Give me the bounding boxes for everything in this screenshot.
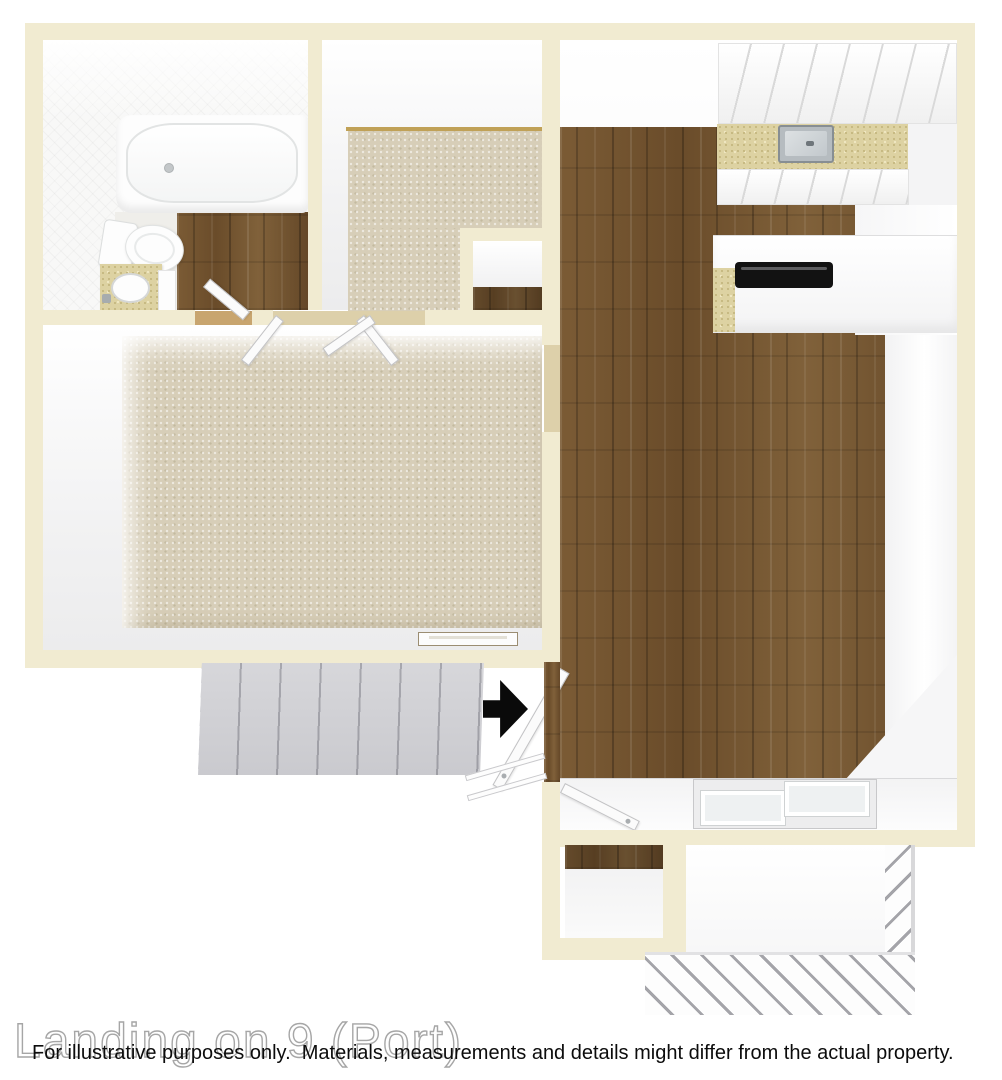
big-room-carpet — [122, 336, 542, 628]
second-door-knob — [625, 818, 632, 825]
floor-plan: Landing on 9 (Port) For illustrative pur… — [0, 0, 1002, 1080]
bathroom-wood-floor — [177, 212, 308, 310]
wall-living-divider-lower — [542, 782, 560, 960]
storage-closet-back-wall — [565, 845, 663, 869]
wall-living-divider-mid — [542, 432, 560, 662]
bathtub-drain — [164, 163, 174, 173]
middle-room-carpet — [348, 131, 542, 228]
vent-slot — [429, 636, 507, 639]
bathroom-wall-shading — [43, 40, 308, 120]
wall-middle-segment-a — [43, 310, 195, 325]
closet-nook-floor — [473, 287, 542, 310]
outer-wall-top — [25, 23, 975, 40]
kitchen-counter-end-wall — [908, 124, 957, 205]
kitchen-faucet — [806, 141, 814, 146]
threshold-entry-door — [544, 662, 560, 782]
baseboard-vent — [418, 632, 518, 646]
sliding-door-glass-right — [789, 786, 865, 812]
balcony-railing-bottom — [645, 952, 915, 1015]
middle-room-carpet-lower — [348, 228, 460, 311]
stove-counter-side-face — [713, 268, 735, 332]
bathtub — [116, 115, 308, 213]
stove-cooktop — [735, 262, 833, 288]
stove-cooktop-trim — [741, 267, 827, 270]
outer-wall-left — [25, 23, 43, 668]
kitchen-lower-cabinets — [717, 169, 909, 205]
toilet-seat — [132, 230, 177, 267]
sliding-door-panel-right — [784, 781, 870, 817]
kitchen-sink — [778, 125, 834, 163]
bathtub-basin — [126, 123, 298, 203]
vanity-faucet — [102, 294, 111, 303]
entry-door-knob — [501, 773, 508, 780]
wall-living-divider-upper — [542, 40, 560, 345]
stairs — [198, 663, 484, 775]
vanity-sink — [111, 273, 150, 303]
entry-arrow-icon — [483, 680, 528, 738]
sliding-door-frame — [693, 779, 877, 829]
threshold-closet-doors — [273, 311, 367, 325]
kitchen-upper-cabinets — [718, 43, 957, 124]
vanity-side-panel — [158, 270, 176, 312]
threshold-living-door — [544, 345, 560, 432]
outer-wall-right — [957, 23, 975, 847]
disclaimer-text: For illustrative purposes only. Material… — [32, 1042, 954, 1065]
sliding-door-glass-left — [705, 795, 781, 821]
closet-nook-wall-left — [460, 241, 473, 310]
sliding-door-panel-left — [700, 790, 786, 826]
wall-bathroom-divider — [308, 40, 322, 310]
wall-middle-segment-c — [425, 310, 542, 325]
